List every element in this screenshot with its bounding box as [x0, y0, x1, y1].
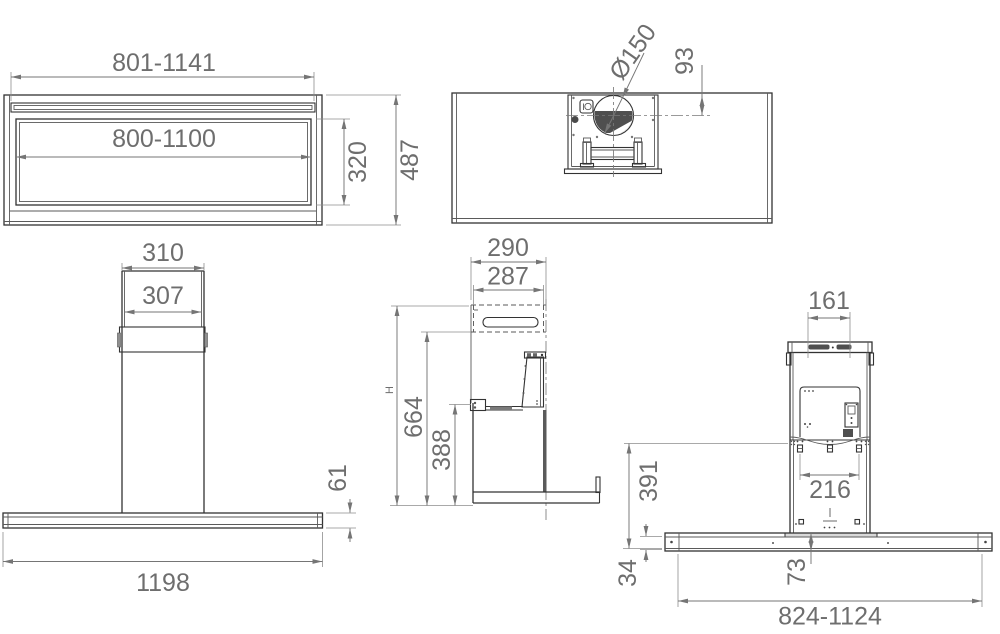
dim-chimney-inner: 307 [125, 282, 202, 312]
dim-cutout-depth: 320 [316, 119, 372, 205]
label-total-depth: 487 [396, 139, 424, 181]
view-rear: 161 216 391 34 73 [614, 287, 992, 631]
label-total-height: H [384, 386, 396, 394]
dim-canopy-thickness: 61 [324, 464, 356, 542]
label-cap-slot-width: 161 [808, 287, 850, 315]
dim-mount-hole-spacing: 216 [800, 454, 859, 504]
side-bracket [522, 352, 546, 407]
dim-cutout-width: 800-1100 [16, 125, 311, 157]
canopy-plan-outline [4, 95, 322, 225]
dim-canopy-profile-height: 34 [614, 524, 662, 587]
dim-height-to-handle: 664 [400, 332, 471, 506]
dim-canopy-width: 1198 [3, 532, 323, 597]
view-side: 290 287 H 664 388 [384, 234, 600, 520]
label-chimney-inner: 307 [142, 282, 184, 310]
label-cutout-width: 800-1100 [112, 125, 216, 153]
view-canopy-plan: 801-1141 800-1100 320 487 [4, 49, 424, 225]
mount-screws [791, 441, 869, 452]
dim-duct-offset: 93 [671, 47, 702, 115]
label-height-body: 388 [428, 429, 456, 471]
cable-gland [572, 116, 579, 123]
view-ceiling-top: Ø150 93 [452, 19, 772, 223]
handle-slot [483, 318, 538, 328]
label-height-to-handle: 664 [400, 396, 428, 438]
mounting-bracket-top [581, 138, 646, 167]
label-duct-offset: 93 [671, 47, 699, 75]
side-canopy [471, 400, 601, 504]
dim-center-drop: 73 [783, 533, 811, 586]
label-canopy-width: 1198 [136, 569, 190, 597]
dim-height-body: 388 [428, 405, 471, 506]
label-mount-hole-spacing: 216 [809, 476, 851, 504]
label-duct-diameter: Ø150 [604, 19, 662, 85]
label-cutout-depth: 320 [344, 141, 372, 183]
drawing-sheet: 801-1141 800-1100 320 487 [0, 0, 1000, 634]
dim-canopy-width-max: 801-1141 [11, 49, 314, 101]
label-panel-height: 391 [635, 460, 663, 502]
label-canopy-profile-height: 34 [614, 559, 642, 587]
view-front: 310 307 61 1198 [3, 239, 356, 597]
label-center-drop: 73 [783, 558, 811, 586]
technical-drawing: 801-1141 800-1100 320 487 [0, 0, 1000, 634]
label-canopy-thickness: 61 [324, 464, 352, 492]
dim-glass-width-range: 824-1124 [678, 554, 982, 631]
label-depth-inner: 287 [487, 263, 529, 291]
label-depth-outer: 290 [487, 234, 529, 262]
rear-motor-panel [800, 387, 860, 437]
dim-chimney-outer: 310 [122, 239, 204, 271]
front-canopy [3, 513, 323, 528]
label-canopy-width-max: 801-1141 [112, 49, 216, 77]
motor-housing [565, 87, 711, 177]
label-chimney-outer: 310 [142, 239, 184, 267]
label-glass-width-range: 824-1124 [778, 603, 882, 631]
power-connector [580, 100, 593, 113]
dim-depth-inner: 287 [474, 263, 544, 306]
dim-total-depth: 487 [326, 95, 424, 225]
